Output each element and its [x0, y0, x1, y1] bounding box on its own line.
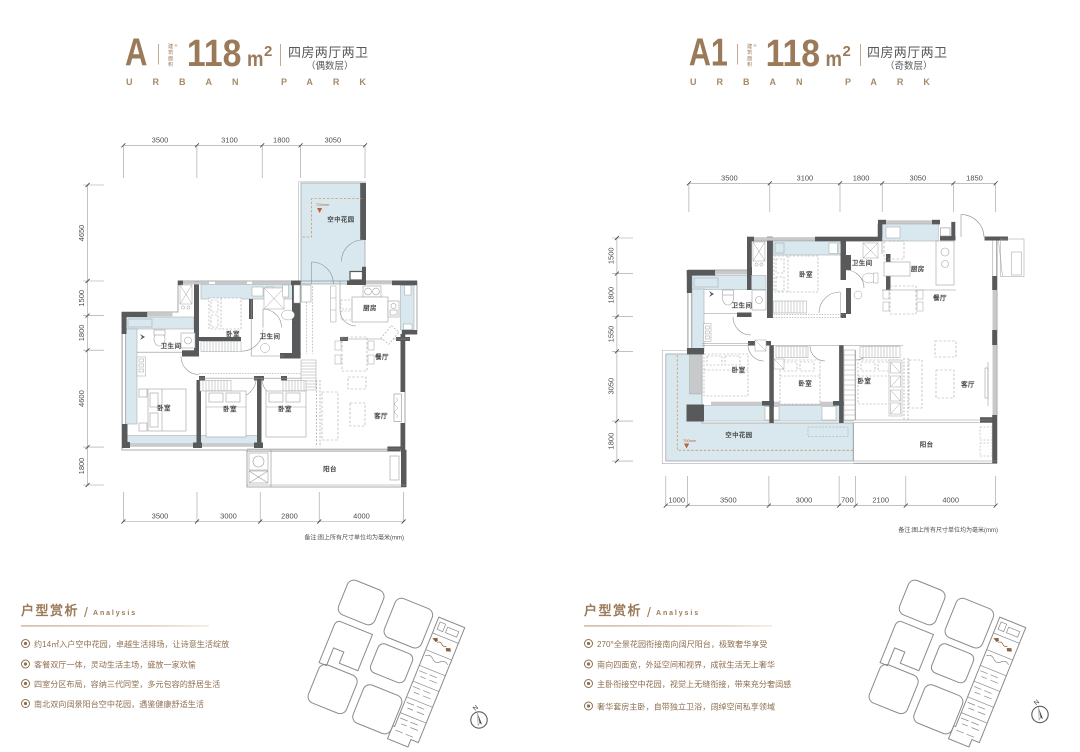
svg-text:南北双向阔景阳台空中花园，遇鉴健康舒适生活: 南北双向阔景阳台空中花园，遇鉴健康舒适生活: [34, 699, 204, 709]
svg-text:积: 积: [747, 61, 752, 68]
svg-text:卧室: 卧室: [278, 404, 292, 413]
svg-text:户型赏析: 户型赏析: [584, 603, 642, 618]
svg-text:3000: 3000: [220, 512, 237, 521]
svg-text:A: A: [125, 32, 148, 75]
svg-text:3050: 3050: [909, 174, 926, 183]
svg-text:m: m: [826, 48, 843, 71]
svg-text:URBAN PARK: URBAN PARK: [690, 77, 950, 87]
svg-text:主卧衔接空中花园，视觉上无缝衔接，带来充分奢阔感: 主卧衔接空中花园，视觉上无缝衔接，带来充分奢阔感: [597, 679, 791, 689]
svg-text:卧室: 卧室: [798, 379, 812, 388]
svg-text:3500: 3500: [152, 512, 169, 521]
svg-text:270°全景花园衔接南向阔尺阳台，极致奢华享受: 270°全景花园衔接南向阔尺阳台，极致奢华享受: [597, 639, 768, 649]
svg-text:备注:图上所有尺寸单位均为毫米(mm): 备注:图上所有尺寸单位均为毫米(mm): [898, 526, 998, 534]
svg-text:1800: 1800: [273, 136, 290, 145]
svg-text:阳台: 阳台: [323, 464, 337, 473]
svg-text:1800: 1800: [606, 433, 615, 450]
svg-text:餐厅: 餐厅: [932, 293, 947, 302]
svg-text:1800: 1800: [606, 287, 615, 304]
svg-text:（偶数层）: （偶数层）: [306, 60, 354, 72]
svg-text:南向四面宽，外延空间和视界，成就生活无上奢华: 南向四面宽，外延空间和视界，成就生活无上奢华: [597, 660, 775, 670]
svg-text:3100: 3100: [797, 174, 814, 183]
svg-text:1800: 1800: [853, 174, 870, 183]
svg-text:厨房: 厨房: [363, 303, 377, 312]
svg-text:筑: 筑: [747, 48, 753, 56]
svg-text:四室分区布局，容纳三代同堂，多元包容的舒居生活: 四室分区布局，容纳三代同堂，多元包容的舒居生活: [34, 679, 220, 689]
svg-text:面: 面: [747, 55, 752, 62]
svg-text:2: 2: [843, 43, 851, 60]
svg-text:客厅: 客厅: [373, 411, 388, 420]
svg-text:Analysis: Analysis: [656, 610, 700, 617]
svg-text:约14㎡入户空中花园，卓越生活排场，让诗意生活绽放: 约14㎡入户空中花园，卓越生活排场，让诗意生活绽放: [34, 639, 229, 649]
svg-text:卫生间: 卫生间: [260, 332, 281, 341]
svg-text:面: 面: [168, 55, 173, 62]
svg-text:1800: 1800: [77, 458, 86, 475]
svg-text:2100: 2100: [872, 496, 889, 505]
svg-text:700mm: 700mm: [316, 202, 330, 207]
svg-text:4650: 4650: [77, 225, 86, 242]
svg-text:卧室: 卧室: [223, 404, 237, 413]
svg-text:118: 118: [187, 33, 242, 75]
svg-text:4000: 4000: [353, 512, 370, 521]
svg-text:客厅: 客厅: [960, 380, 975, 389]
svg-text:厨房: 厨房: [911, 264, 925, 273]
svg-text:奢华套房主卧，自带独立卫浴，阔绰空间私享领域: 奢华套房主卧，自带独立卫浴，阔绰空间私享领域: [597, 702, 775, 712]
svg-text:四房两厅两卫: 四房两厅两卫: [288, 45, 368, 60]
svg-text:1000: 1000: [668, 496, 685, 505]
svg-text:118: 118: [766, 33, 821, 75]
svg-text:1500: 1500: [77, 290, 86, 307]
svg-text:空中花园: 空中花园: [725, 430, 752, 439]
svg-text:m: m: [247, 48, 264, 71]
svg-text:卧室: 卧室: [157, 403, 171, 412]
svg-text:备注:图上所有尺寸单位均为毫米(mm): 备注:图上所有尺寸单位均为毫米(mm): [304, 534, 404, 542]
svg-text:3100: 3100: [221, 136, 238, 145]
svg-text:4600: 4600: [77, 390, 86, 407]
svg-text:2: 2: [264, 43, 272, 60]
svg-text:4000: 4000: [942, 496, 959, 505]
svg-text:阳台: 阳台: [920, 440, 934, 449]
svg-text:（奇数层）: （奇数层）: [885, 60, 933, 72]
svg-text:3050: 3050: [324, 136, 341, 145]
svg-text:URBAN PARK: URBAN PARK: [126, 77, 386, 87]
svg-text:®: ®: [754, 43, 757, 48]
svg-text:2800: 2800: [281, 512, 298, 521]
svg-text:卫生间: 卫生间: [852, 258, 873, 267]
svg-text:四房两厅两卫: 四房两厅两卫: [867, 45, 947, 60]
svg-text:®: ®: [175, 43, 178, 48]
svg-text:1550: 1550: [606, 326, 615, 343]
svg-text:户型赏析: 户型赏析: [21, 603, 79, 618]
svg-text:1800: 1800: [77, 325, 86, 342]
svg-text:卧室: 卧室: [226, 329, 240, 338]
svg-text:700mm: 700mm: [683, 438, 697, 443]
svg-text:/: /: [647, 604, 651, 620]
svg-text:700: 700: [841, 496, 854, 505]
svg-text:卧室: 卧室: [857, 376, 871, 385]
svg-text:1850: 1850: [966, 174, 983, 183]
svg-text:A1: A1: [689, 32, 728, 75]
svg-text:3500: 3500: [720, 496, 737, 505]
svg-text:3050: 3050: [606, 378, 615, 395]
svg-text:筑: 筑: [168, 48, 174, 56]
svg-text:卫生间: 卫生间: [732, 301, 753, 310]
svg-text:积: 积: [168, 61, 173, 68]
svg-text:3500: 3500: [721, 174, 738, 183]
svg-text:建: 建: [747, 42, 752, 50]
svg-text:客餐双厅一体，灵动生活主场，盛放一家欢愉: 客餐双厅一体，灵动生活主场，盛放一家欢愉: [34, 660, 196, 670]
svg-text:卫生间: 卫生间: [161, 341, 182, 350]
svg-text:建: 建: [168, 42, 173, 50]
svg-text:卧室: 卧室: [732, 365, 746, 374]
svg-text:/: /: [84, 604, 88, 620]
svg-text:1500: 1500: [606, 247, 615, 264]
svg-text:Analysis: Analysis: [93, 610, 137, 617]
svg-text:3000: 3000: [796, 496, 813, 505]
svg-text:餐厅: 餐厅: [374, 352, 389, 361]
svg-text:卧室: 卧室: [799, 270, 813, 279]
svg-text:3500: 3500: [152, 136, 169, 145]
svg-text:空中花园: 空中花园: [327, 215, 354, 224]
